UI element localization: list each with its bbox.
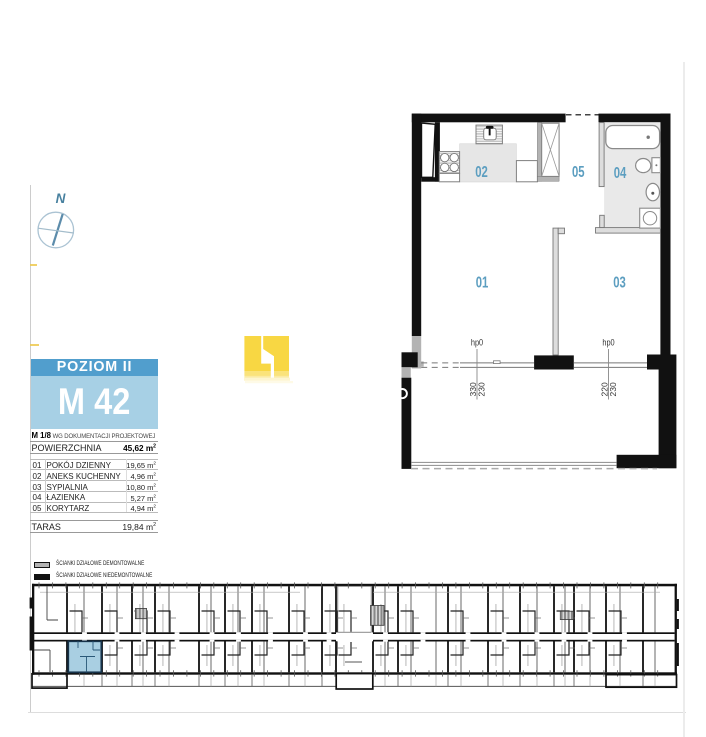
svg-text:hp0: hp0: [471, 338, 484, 348]
svg-text:230: 230: [608, 382, 618, 396]
svg-text:hp0: hp0: [602, 338, 615, 348]
svg-text:04: 04: [614, 164, 627, 181]
svg-text:N: N: [56, 191, 66, 206]
svg-text:03: 03: [613, 274, 626, 291]
svg-text:05: 05: [572, 163, 585, 180]
svg-text:02: 02: [475, 163, 488, 180]
svg-text:01: 01: [476, 274, 489, 291]
svg-text:230: 230: [477, 382, 487, 396]
